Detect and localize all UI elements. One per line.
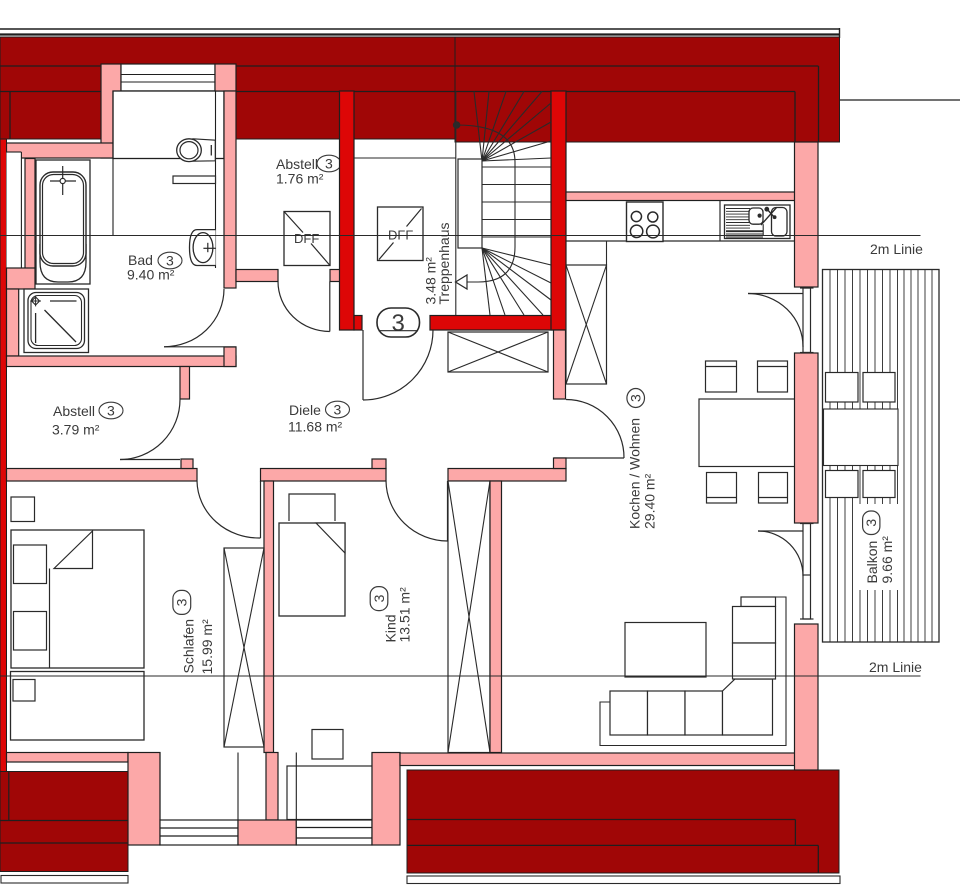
svg-text:3: 3 xyxy=(371,594,387,602)
svg-text:2m Linie: 2m Linie xyxy=(870,241,923,257)
svg-text:DFF: DFF xyxy=(294,231,319,246)
svg-text:15.99 m²: 15.99 m² xyxy=(199,619,215,675)
svg-text:Diele: Diele xyxy=(289,402,321,418)
svg-text:3: 3 xyxy=(334,402,342,418)
svg-text:Balkon: Balkon xyxy=(864,541,880,584)
svg-text:3: 3 xyxy=(628,394,644,402)
svg-text:3: 3 xyxy=(863,519,879,527)
svg-text:Abstell: Abstell xyxy=(53,403,95,419)
svg-text:13.51 m²: 13.51 m² xyxy=(397,587,413,643)
svg-text:3: 3 xyxy=(392,310,405,337)
svg-text:3.79 m²: 3.79 m² xyxy=(52,422,100,438)
svg-text:1.76 m²: 1.76 m² xyxy=(276,171,324,187)
svg-text:2m Linie: 2m Linie xyxy=(869,659,922,675)
svg-text:3: 3 xyxy=(174,598,190,606)
svg-text:3.48 m²: 3.48 m² xyxy=(423,257,439,305)
svg-text:29.40 m²: 29.40 m² xyxy=(642,473,658,529)
svg-text:3: 3 xyxy=(325,156,333,172)
svg-text:9.40 m²: 9.40 m² xyxy=(127,267,175,283)
svg-text:Schlafen: Schlafen xyxy=(181,619,197,673)
svg-text:11.68 m²: 11.68 m² xyxy=(288,419,343,435)
svg-text:Kochen / Wohnen: Kochen / Wohnen xyxy=(627,418,643,529)
svg-text:3: 3 xyxy=(107,403,115,419)
svg-text:9.66 m²: 9.66 m² xyxy=(879,536,895,584)
